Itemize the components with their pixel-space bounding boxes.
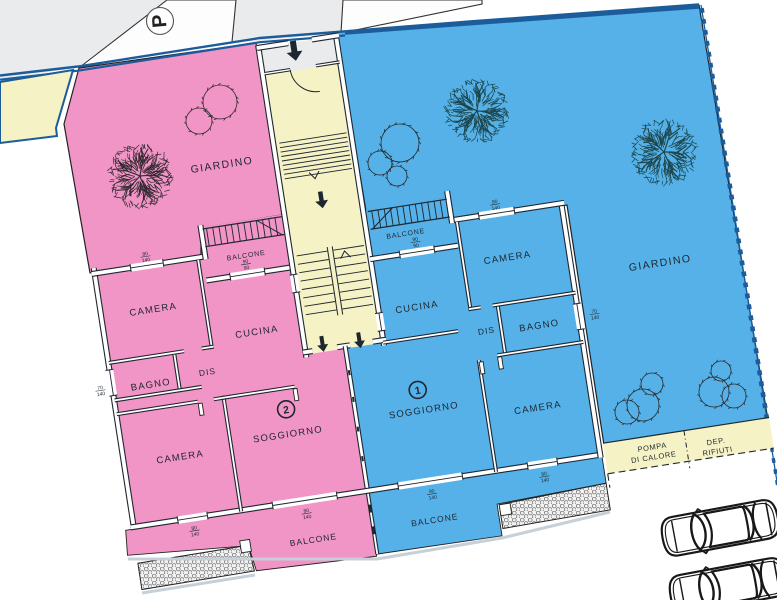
svg-text:90: 90 xyxy=(243,265,250,272)
svg-text:P: P xyxy=(148,13,171,28)
svg-text:90: 90 xyxy=(413,243,420,250)
